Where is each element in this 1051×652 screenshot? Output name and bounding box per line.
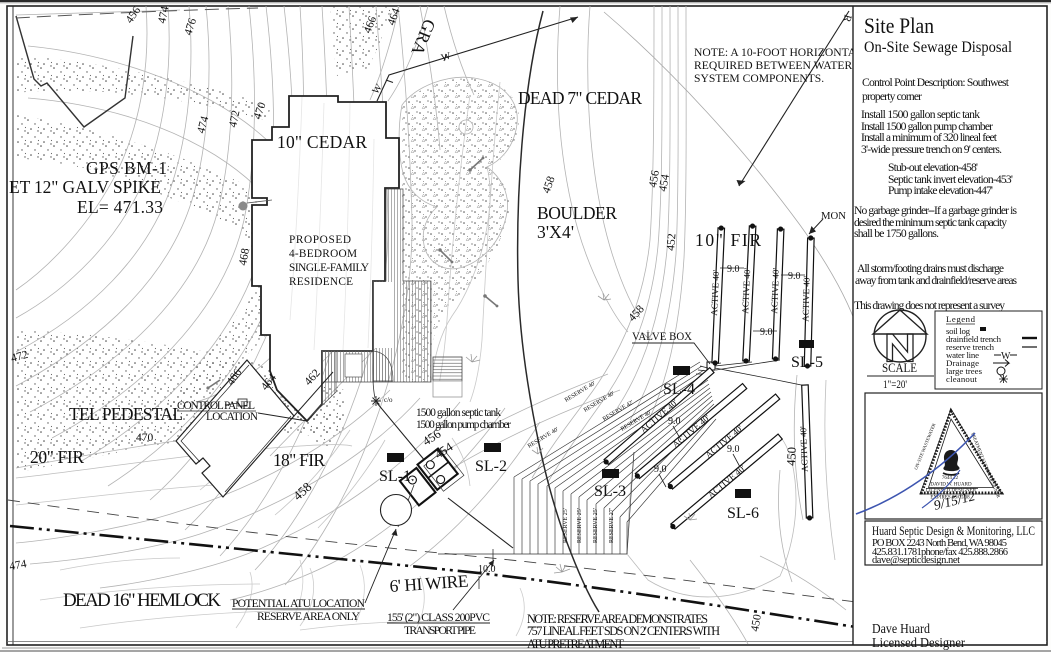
svg-text:SL-4: SL-4: [663, 381, 695, 398]
svg-text:757 LINEAL FEET SDS ON 2' CENT: 757 LINEAL FEET SDS ON 2' CENTERS WITH: [527, 624, 720, 638]
svg-text:SL-3: SL-3: [594, 483, 626, 500]
svg-text:shall be 1750 gallons.: shall be 1750 gallons.: [854, 227, 939, 240]
svg-text:DEAD 7" CEDAR: DEAD 7" CEDAR: [518, 88, 642, 108]
svg-text:3'-wide pressure trench on 9': 3'-wide pressure trench on 9' centers.: [861, 143, 1002, 156]
svg-text:9.0: 9.0: [760, 327, 773, 338]
svg-text:Licensed Designer: Licensed Designer: [872, 635, 965, 650]
svg-text:RESERVE 27': RESERVE 27': [609, 508, 615, 543]
svg-text:RESIDENCE: RESIDENCE: [289, 276, 353, 288]
svg-text:On-Site Sewage Disposal: On-Site Sewage Disposal: [864, 39, 1013, 56]
svg-text:155' (2") CLASS 200PVC: 155' (2") CLASS 200PVC: [387, 611, 490, 624]
svg-text:MON: MON: [821, 210, 846, 222]
svg-text:SL-5: SL-5: [791, 354, 823, 371]
svg-text:away from tank and drainfield/: away from tank and drainfield/reserve ar…: [855, 274, 1017, 287]
svg-text:9.0: 9.0: [727, 444, 740, 455]
svg-text:20" FIR: 20" FIR: [30, 447, 84, 467]
svg-text:SYSTEM COMPONENTS.: SYSTEM COMPONENTS.: [694, 72, 824, 85]
svg-text:Pump intake elevation-447': Pump intake elevation-447': [888, 184, 993, 197]
svg-text:SL-6: SL-6: [727, 505, 759, 522]
svg-text:9.0: 9.0: [654, 464, 667, 475]
svg-text:9.0: 9.0: [668, 416, 681, 427]
svg-text:10" FIR: 10" FIR: [695, 230, 761, 250]
svg-text:RESERVE 25': RESERVE 25': [563, 508, 569, 543]
svg-text:LOCATION: LOCATION: [206, 411, 258, 423]
svg-text:10" CEDAR: 10" CEDAR: [277, 132, 367, 152]
svg-text:18" FIR: 18" FIR: [273, 450, 325, 470]
svg-text:EL= 471.33: EL= 471.33: [77, 197, 163, 217]
svg-text:POTENTIAL ATU LOCATION: POTENTIAL ATU LOCATION: [232, 597, 366, 610]
svg-text:7644 22: 7644 22: [942, 476, 959, 481]
svg-text:ACTIVE 40': ACTIVE 40': [769, 267, 781, 314]
svg-text:10.0: 10.0: [478, 564, 496, 575]
svg-text:SCALE: SCALE: [882, 360, 917, 375]
svg-text:Dave Huard: Dave Huard: [872, 621, 930, 636]
svg-text:ET 12" GALV SPIKE: ET 12" GALV SPIKE: [9, 177, 161, 197]
svg-text:This drawing does not represen: This drawing does not represent a survey: [854, 299, 1005, 312]
svg-text:SL-2: SL-2: [475, 458, 507, 475]
svg-text:470: 470: [136, 432, 154, 444]
svg-text:dave@septicdesign.net: dave@septicdesign.net: [872, 555, 960, 566]
svg-text:RESERVE 25': RESERVE 25': [593, 508, 599, 543]
svg-text:c/o: c/o: [384, 396, 393, 404]
svg-text:ATU PRETREATMENT: ATU PRETREATMENT: [527, 637, 625, 651]
svg-text:SINGLE-FAMILY: SINGLE-FAMILY: [289, 262, 369, 274]
svg-text:RESERVE AREA ONLY: RESERVE AREA ONLY: [257, 610, 361, 623]
svg-text:VALVE BOX: VALVE BOX: [632, 330, 693, 343]
svg-text:Huard Septic Design & Monitori: Huard Septic Design & Monitoring, LLC: [872, 524, 1035, 538]
svg-text:9.0: 9.0: [727, 264, 740, 275]
svg-text:ACTIVE 40': ACTIVE 40': [798, 426, 810, 473]
svg-text:Site Plan: Site Plan: [864, 13, 934, 38]
svg-text:Legend: Legend: [946, 314, 976, 324]
svg-text:9.0: 9.0: [788, 271, 801, 282]
svg-text:property corner: property corner: [862, 90, 922, 103]
svg-text:Control Point Description: Sou: Control Point Description: Southwest: [862, 76, 1010, 89]
svg-text:1"=20': 1"=20': [883, 379, 907, 391]
svg-text:BOULDER: BOULDER: [537, 203, 617, 223]
svg-text:3'X4': 3'X4': [537, 222, 574, 242]
svg-text:PROPOSED: PROPOSED: [289, 234, 351, 246]
svg-text:450: 450: [784, 447, 799, 466]
svg-text:DEAD 16" HEMLOCK: DEAD 16" HEMLOCK: [63, 590, 221, 611]
svg-text:4-BEDROOM: 4-BEDROOM: [289, 248, 357, 260]
svg-text:ACTIVE 40': ACTIVE 40': [709, 269, 721, 316]
svg-text:452: 452: [665, 233, 678, 251]
svg-text:GPS BM-1: GPS BM-1: [86, 158, 167, 178]
svg-text:TEL PEDESTAL: TEL PEDESTAL: [69, 404, 183, 424]
svg-text:SL-1: SL-1: [379, 468, 411, 485]
svg-text:ACTIVE 40': ACTIVE 40': [800, 275, 811, 321]
svg-text:TRANSPORT PIPE: TRANSPORT PIPE: [404, 624, 476, 637]
svg-text:1500 gallon septic tank: 1500 gallon septic tank: [416, 407, 501, 419]
svg-text:cleanout: cleanout: [946, 374, 978, 384]
svg-text:DAVID W. HUARD: DAVID W. HUARD: [930, 483, 972, 488]
svg-text:RESERVE 25': RESERVE 25': [577, 508, 583, 543]
